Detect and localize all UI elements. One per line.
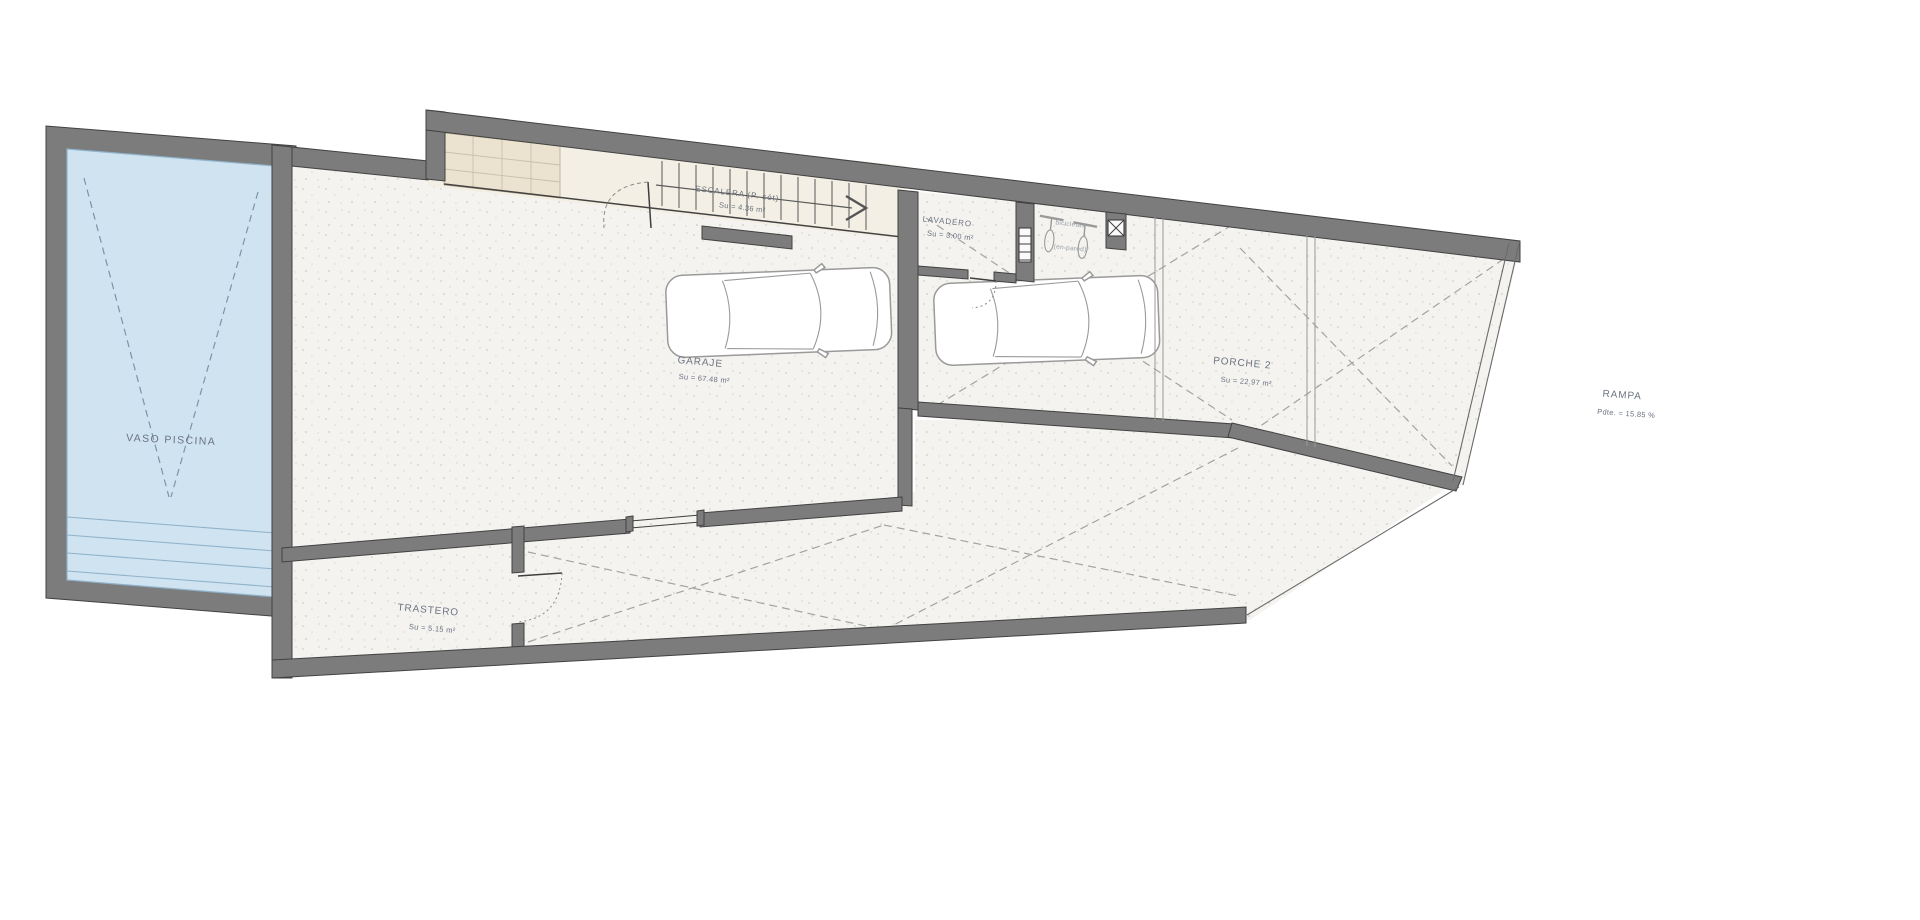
pool: VASO PISCINA: [46, 126, 296, 618]
rampa-label: RAMPA: [1602, 389, 1642, 403]
left-wall: [272, 145, 292, 678]
garage-laundry-divider: [898, 190, 918, 410]
floor-plan-canvas: VASO PISCINA: [0, 0, 1920, 920]
laundry-bottom-wall-b: [994, 272, 1016, 283]
car-porch: [933, 269, 1161, 372]
rampa-area: Pdte. = 15.85 %: [1597, 407, 1656, 420]
car-garage: [665, 261, 893, 364]
storeroom-right-wall-upper: [512, 526, 524, 573]
garage-porch-jog-wall: [898, 408, 912, 506]
basement-floor-plan: VASO PISCINA: [0, 0, 1920, 920]
wall-ladder-symbol: [1019, 228, 1031, 262]
pool-water: [67, 149, 275, 597]
